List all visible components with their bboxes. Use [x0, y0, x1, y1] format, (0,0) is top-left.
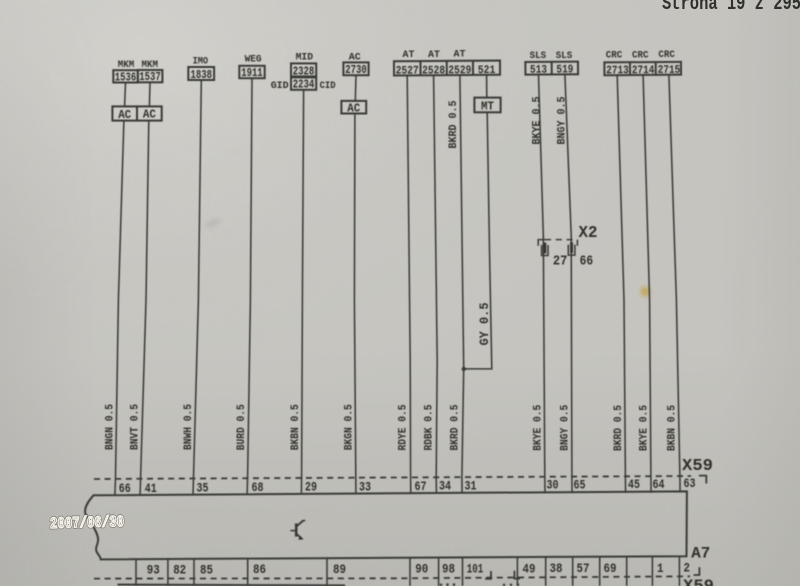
svg-text:BKRD 0.5: BKRD 0.5	[613, 405, 625, 451]
svg-text:A7: A7	[691, 545, 710, 563]
svg-text:IMO: IMO	[193, 57, 209, 68]
svg-text:82: 82	[173, 564, 186, 578]
svg-text:1: 1	[657, 562, 664, 576]
svg-text:BNGN 0.5: BNGN 0.5	[105, 404, 117, 450]
svg-text:64: 64	[653, 478, 665, 492]
svg-text:2: 2	[684, 562, 691, 576]
svg-text:2529: 2529	[448, 64, 471, 77]
svg-text:RDYE 0.5: RDYE 0.5	[398, 404, 410, 450]
svg-text:27: 27	[553, 255, 568, 270]
svg-text:49: 49	[523, 562, 536, 576]
svg-text:BKRD 0.5: BKRD 0.5	[450, 404, 462, 450]
svg-text:57: 57	[577, 562, 590, 576]
svg-text:519: 519	[556, 63, 573, 76]
svg-text:X59: X59	[683, 577, 714, 586]
svg-text:SLS: SLS	[530, 51, 547, 62]
svg-text:2715: 2715	[658, 64, 681, 77]
svg-text:WEG: WEG	[245, 55, 262, 66]
svg-text:2007/06/30: 2007/06/30	[50, 513, 124, 533]
svg-text:AC: AC	[143, 109, 156, 122]
svg-text:93: 93	[147, 564, 160, 578]
svg-text:SLS: SLS	[556, 51, 573, 62]
svg-text:2328: 2328	[293, 65, 315, 78]
svg-text:AT: AT	[454, 50, 466, 61]
svg-text:BKYE 0.5: BKYE 0.5	[532, 404, 544, 450]
svg-text:MID: MID	[296, 53, 314, 64]
svg-text:35: 35	[197, 482, 209, 496]
svg-text:X2: X2	[579, 223, 598, 242]
svg-text:BKBN 0.5: BKBN 0.5	[290, 404, 302, 450]
svg-text:RDBK 0.5: RDBK 0.5	[423, 404, 435, 450]
svg-text:30: 30	[547, 479, 559, 493]
svg-text:1537: 1537	[139, 71, 161, 84]
svg-text:BNWH 0.5: BNWH 0.5	[183, 404, 195, 450]
svg-text:CID: CID	[320, 81, 336, 92]
svg-text:AC: AC	[347, 102, 360, 115]
svg-text:89: 89	[333, 563, 346, 577]
svg-text:BKYE 0.5: BKYE 0.5	[639, 405, 651, 451]
svg-text:1838: 1838	[191, 69, 213, 82]
svg-text:98: 98	[442, 563, 455, 577]
svg-text:67: 67	[415, 480, 427, 494]
svg-text:101: 101	[467, 563, 484, 577]
svg-text:66: 66	[580, 255, 594, 270]
svg-text:MT: MT	[481, 101, 494, 114]
svg-text:69: 69	[604, 562, 617, 576]
svg-text:BNGY 0.5: BNGY 0.5	[560, 404, 572, 450]
svg-text:1536: 1536	[115, 71, 137, 84]
svg-text:CRC: CRC	[606, 51, 623, 62]
svg-text:29: 29	[305, 481, 317, 495]
svg-text:85: 85	[200, 563, 213, 577]
svg-text:BNVT 0.5: BNVT 0.5	[130, 404, 142, 450]
svg-text:CRC: CRC	[658, 50, 675, 61]
svg-text:Strona 19 z 295: Strona 19 z 295	[662, 0, 800, 16]
svg-text:65: 65	[574, 479, 586, 493]
svg-text:X59: X59	[682, 456, 713, 475]
svg-text:AC: AC	[118, 109, 131, 122]
svg-text:BKYE 0.5: BKYE 0.5	[531, 96, 543, 144]
svg-text:BKRD 0.5: BKRD 0.5	[448, 100, 460, 148]
svg-text:31: 31	[465, 479, 477, 493]
svg-text:2234: 2234	[293, 79, 315, 92]
svg-text:63: 63	[684, 477, 696, 491]
svg-text:45: 45	[628, 478, 640, 492]
svg-text:90: 90	[415, 563, 428, 577]
svg-text:33: 33	[359, 480, 371, 494]
svg-text:521: 521	[478, 64, 496, 77]
svg-text:GY 0.5: GY 0.5	[478, 303, 492, 346]
svg-text:BKBN 0.5: BKBN 0.5	[667, 405, 679, 451]
svg-text:68: 68	[252, 481, 264, 495]
svg-text:GID: GID	[271, 81, 289, 92]
svg-text:BKGN 0.5: BKGN 0.5	[344, 404, 356, 450]
svg-text:AT: AT	[403, 50, 415, 61]
svg-text:34: 34	[439, 480, 451, 494]
svg-text:BURD 0.5: BURD 0.5	[236, 404, 248, 450]
svg-text:CRC: CRC	[632, 50, 649, 61]
svg-text:86: 86	[253, 563, 266, 577]
svg-text:38: 38	[550, 562, 563, 576]
svg-text:BNGY 0.5: BNGY 0.5	[557, 96, 569, 144]
svg-text:AT: AT	[428, 50, 440, 61]
